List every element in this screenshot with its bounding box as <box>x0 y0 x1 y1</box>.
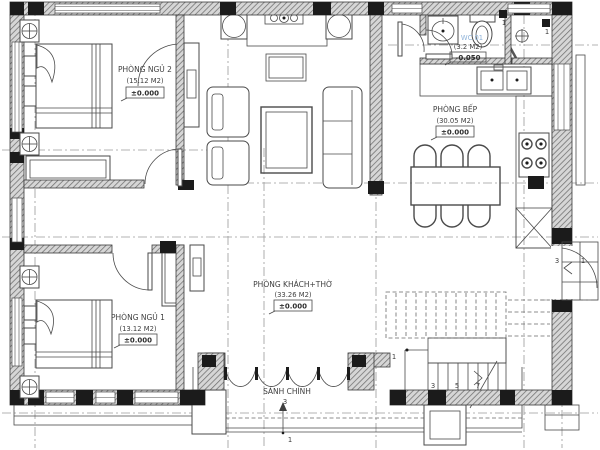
window-icon <box>392 4 422 13</box>
window-icon <box>12 298 22 366</box>
nightstand-icon <box>24 56 36 76</box>
step-number: 3 <box>555 257 559 265</box>
room-level: ±0.000 <box>441 129 469 137</box>
double-bed-icon <box>36 300 112 368</box>
room-level: ±0.000 <box>279 303 307 311</box>
tag-number: 1 <box>502 19 506 27</box>
tread-number: 3 <box>431 382 435 390</box>
room-area: (15.12 M2) <box>126 77 163 85</box>
room-name: PHÒNG NGỦ 2 <box>118 64 172 74</box>
fan-coil-icon <box>20 133 39 155</box>
room-name: WC 01 <box>461 34 483 42</box>
tv-cabinet-icon <box>190 245 204 291</box>
room-area: (30.05 M2) <box>436 117 473 125</box>
room-name: PHÒNG NGỦ 1 <box>111 312 165 322</box>
step-number: 1 <box>288 436 292 444</box>
window-icon <box>135 392 178 403</box>
window-icon <box>554 64 570 130</box>
nightstand-icon <box>24 306 36 320</box>
room-level: ±0.000 <box>124 337 152 345</box>
fan-coil-icon <box>20 20 39 42</box>
sink-icon <box>428 16 458 44</box>
tread-number: 5 <box>455 382 459 390</box>
room-level: ±0.000 <box>131 90 159 98</box>
nightstand-icon <box>24 328 36 344</box>
armchair-icon <box>207 141 249 185</box>
window-icon <box>55 4 160 13</box>
fan-coil-icon <box>20 376 39 398</box>
low-cabinet-icon <box>26 156 110 182</box>
window-icon <box>12 198 22 242</box>
room-name: PHÒNG KHÁCH+THỜ <box>253 280 333 289</box>
room-name: SẢNH CHÍNH <box>263 387 311 396</box>
room-name: PHÒNG BẾP <box>433 104 478 114</box>
window-icon <box>508 4 550 13</box>
plant-pot-icon <box>221 13 247 39</box>
window-icon <box>46 392 74 403</box>
tag-number: 1 <box>545 28 549 36</box>
tread-number: 7 <box>476 382 480 390</box>
stove-icon <box>519 133 549 177</box>
floor-plan-drawing: PHÒNG NGỦ 2 (15.12 M2) ±0.000 PHÒNG NGỦ … <box>0 0 600 450</box>
fixture-tag-icon <box>542 19 550 27</box>
step-number: 3 <box>283 398 287 406</box>
room-area: (13.12 M2) <box>119 325 156 333</box>
sofa-icon <box>323 87 362 188</box>
step-number: 1 <box>581 257 585 265</box>
double-sink-icon <box>477 65 531 94</box>
double-bed-icon <box>36 44 112 128</box>
window-icon <box>96 392 115 403</box>
plant-pot-icon <box>326 13 352 39</box>
fan-coil-icon <box>20 266 39 288</box>
room-level: -0.050 <box>455 54 480 62</box>
room-area: (33.26 M2) <box>274 291 311 299</box>
window-icon <box>12 42 22 132</box>
tread-number: 1 <box>392 353 396 361</box>
fixture-tag-icon <box>499 10 507 18</box>
nightstand-icon <box>24 86 36 106</box>
room-area: (3.2 M2) <box>454 43 483 51</box>
armchair-icon <box>207 87 249 137</box>
